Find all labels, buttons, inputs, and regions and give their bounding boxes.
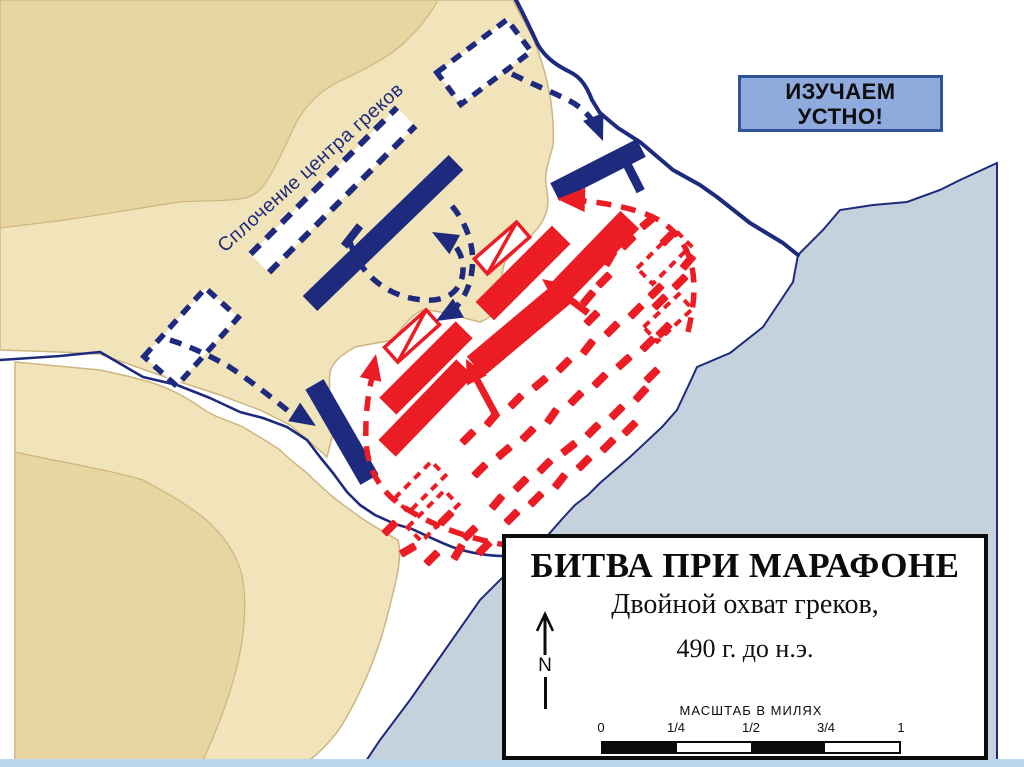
scale-bar-segment (751, 743, 825, 752)
slide-bottom-strip (0, 759, 1024, 767)
scale-tick-label: 1/4 (667, 720, 685, 735)
routed-unit-marker (584, 421, 602, 439)
routed-unit-marker (488, 493, 505, 511)
routed-unit-marker (552, 472, 569, 490)
legend-box: БИТВА ПРИ МАРАФОНЕ Двойной охват греков,… (502, 534, 988, 760)
scale-bar-ticks: 01/41/23/41 (601, 720, 901, 736)
scale-bar-segment (603, 743, 677, 752)
persian-attack-arrow (476, 378, 497, 417)
scale-bar-label: МАСШТАБ В МИЛЯХ (601, 703, 901, 718)
routed-unit-marker (591, 371, 609, 389)
routed-unit-marker (621, 419, 639, 437)
scale-tick-label: 3/4 (817, 720, 835, 735)
routed-unit-marker (567, 389, 585, 407)
persian-routed-dashed-unit (644, 294, 693, 341)
routed-unit-marker (536, 457, 554, 475)
routed-unit-marker (507, 392, 525, 410)
greek-unit-tick (621, 159, 644, 193)
map-subtitle: Двойной охват греков, (506, 589, 984, 621)
routed-unit-marker (527, 490, 545, 508)
routed-unit-marker (423, 549, 441, 567)
routed-unit-marker (399, 542, 418, 557)
routed-unit-marker (560, 440, 578, 457)
north-letter: N (530, 656, 560, 676)
routed-unit-marker (639, 335, 657, 353)
persian-retreat-arc-head (360, 352, 387, 382)
routed-unit-marker (671, 273, 689, 291)
scale-bar-segment (825, 743, 899, 752)
routed-unit-marker (512, 475, 530, 493)
scale-bar-segment (677, 743, 751, 752)
scale-tick-label: 0 (597, 720, 604, 735)
routed-unit-marker (519, 425, 537, 443)
routed-unit-marker (555, 356, 573, 374)
routed-unit-marker (615, 353, 633, 370)
scale-tick-label: 1/2 (742, 720, 760, 735)
routed-unit-marker (627, 302, 645, 320)
scale-tick-label: 1 (897, 720, 904, 735)
north-arrow-tail (544, 677, 547, 709)
routed-unit-marker (580, 338, 597, 356)
routed-unit-marker (603, 320, 621, 338)
routed-unit-marker (459, 428, 477, 446)
scale-bar (601, 741, 901, 754)
routed-unit-marker (450, 543, 465, 562)
map-date: 490 г. до н.э. (506, 634, 984, 664)
routed-unit-marker (575, 454, 593, 472)
routed-unit-marker (632, 385, 649, 403)
routed-unit-marker (495, 443, 513, 460)
badge-line2: УСТНО! (798, 104, 884, 129)
north-arrow: N (530, 610, 560, 714)
routed-unit-marker (531, 374, 549, 391)
north-arrow-icon (530, 610, 560, 656)
map-title: БИТВА ПРИ МАРАФОНЕ (506, 548, 984, 584)
routed-unit-marker (595, 271, 613, 289)
battle-map-slide: Сплочение центра греков ИЗУЧАЕМ УСТНО! Б… (0, 0, 1024, 767)
routed-unit-marker (544, 407, 560, 426)
study-orally-badge: ИЗУЧАЕМ УСТНО! (738, 75, 943, 132)
persian-routed-dashed-unit (395, 462, 446, 513)
routed-unit-marker (599, 436, 617, 454)
routed-unit-marker (608, 403, 626, 421)
routed-unit-marker (503, 508, 521, 526)
routed-unit-marker (643, 366, 661, 384)
badge-line1: ИЗУЧАЕМ (785, 79, 895, 104)
routed-unit-marker (471, 461, 489, 479)
